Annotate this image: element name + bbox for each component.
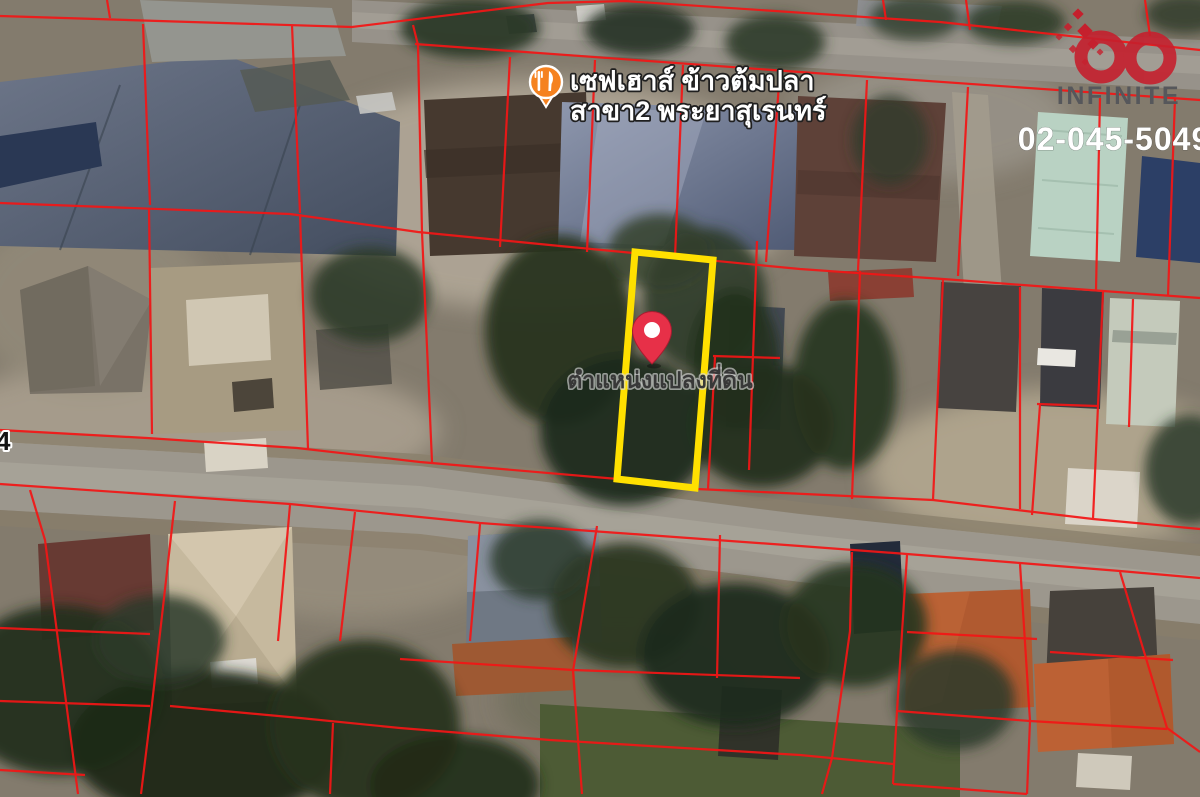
poi-pin-circle: [530, 66, 562, 98]
satellite-map: ตำแหน่งแปลงที่ดิน เซฟเฮาส์ ข้าวต้มปลา สา…: [0, 0, 1200, 797]
poi-label-line2: สาขา2 พระยาสุเรนทร์: [570, 95, 827, 128]
roof-shading: [186, 294, 271, 366]
parcel-location-label: ตำแหน่งแปลงที่ดิน: [567, 363, 753, 393]
tree: [725, 14, 825, 70]
building-roof: [1076, 753, 1132, 790]
building-roof: [1040, 288, 1104, 409]
poi-label-line1: เซฟเฮาส์ ข้าวต้มปลา: [570, 65, 814, 96]
tree: [400, 0, 540, 58]
tree: [965, 0, 1065, 44]
pin-hole: [644, 322, 660, 338]
listing-map-image: ตำแหน่งแปลงที่ดิน เซฟเฮาส์ ข้าวต้มปลา สา…: [0, 0, 1200, 797]
road-number-label: 4: [0, 426, 11, 456]
roof-shading: [1108, 654, 1174, 748]
building-roof: [1106, 298, 1180, 427]
car: [1037, 348, 1076, 367]
building-roof: [1136, 156, 1200, 263]
building-roof: [937, 282, 1021, 412]
roof-shading: [232, 378, 274, 412]
tree: [310, 247, 430, 343]
brand-name: INFINITE: [1057, 82, 1181, 110]
tree: [585, 4, 695, 56]
tree: [490, 520, 590, 600]
building-roof: [140, 0, 346, 62]
tree: [895, 650, 1015, 750]
tree: [793, 300, 897, 470]
phone-number: 02-045-5049: [1018, 121, 1200, 157]
